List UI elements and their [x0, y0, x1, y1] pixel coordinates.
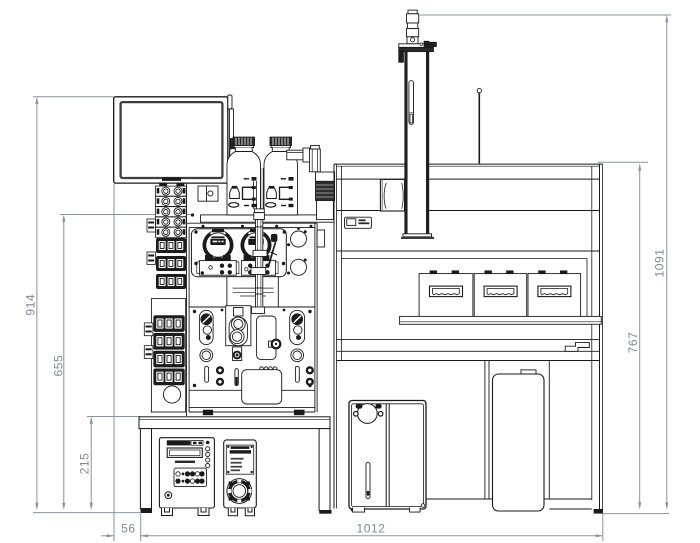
- svg-text:1012: 1012: [356, 521, 385, 535]
- svg-text:655: 655: [52, 355, 66, 377]
- svg-text:914: 914: [24, 294, 38, 316]
- svg-text:56: 56: [121, 521, 136, 535]
- svg-text:215: 215: [78, 453, 92, 475]
- svg-text:767: 767: [626, 332, 640, 354]
- svg-text:1091: 1091: [653, 248, 667, 277]
